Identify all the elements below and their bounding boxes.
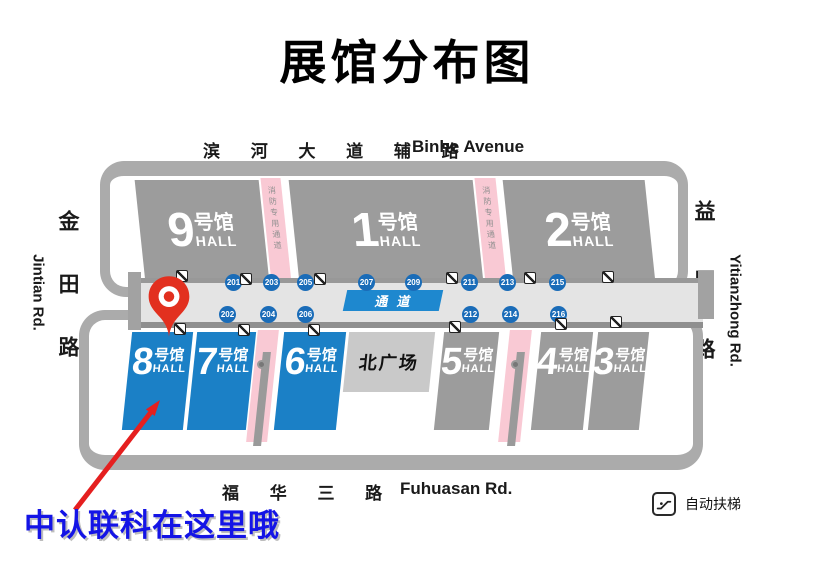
- road-yitian-en: Yitianzhong Rd.: [727, 236, 744, 386]
- road-fuhuasan-en: Fuhuasan Rd.: [400, 479, 512, 499]
- legend-escalator-label: 自动扶梯: [685, 494, 741, 514]
- escalator-marker-icon: [446, 272, 458, 284]
- escalator-marker-icon: [308, 324, 320, 336]
- escalator-marker-icon: [314, 273, 326, 285]
- north-plaza: 北广场: [343, 332, 435, 392]
- hall-5: 5 号馆HALL: [434, 332, 499, 430]
- gate-215: 215: [549, 274, 566, 291]
- gate-206: 206: [297, 306, 314, 323]
- hall-3: 3 号馆HALL: [588, 332, 649, 430]
- corridor-end-cap: [698, 271, 714, 319]
- escalator-marker-icon: [602, 271, 614, 283]
- gate-202: 202: [219, 306, 236, 323]
- gate-213: 213: [499, 274, 516, 291]
- gate-204: 204: [260, 306, 277, 323]
- gate-211: 211: [461, 274, 478, 291]
- legend-escalator: 自动扶梯: [652, 492, 741, 516]
- gate-212: 212: [462, 306, 479, 323]
- north-plaza-label: 北广场: [358, 349, 421, 375]
- hall-1: 1 号馆HALL: [289, 180, 484, 282]
- escalator-icon: [652, 492, 676, 516]
- hall-6: 6 号馆HALL: [274, 332, 346, 430]
- hall-4: 4 号馆HALL: [531, 332, 593, 430]
- gate-207: 207: [358, 274, 375, 291]
- page-title: 展馆分布图: [0, 24, 814, 93]
- hall-2: 2 号馆HALL: [503, 180, 656, 282]
- stairs-marker-icon: [610, 316, 622, 328]
- road-jintian-en: Jintian Rd.: [30, 238, 47, 348]
- corridor-end-cap: [128, 272, 141, 330]
- location-pin-icon: [147, 268, 191, 346]
- passage-label: 通道: [373, 291, 421, 310]
- escalator-marker-icon: [449, 321, 461, 333]
- escalator-marker-icon: [240, 273, 252, 285]
- ramp-knob: [257, 360, 266, 369]
- road-jintian-zh: 金田路: [52, 210, 82, 399]
- hall-7: 7 号馆HALL: [187, 332, 256, 430]
- passage-bar: 通道: [343, 290, 443, 311]
- stairs-marker-icon: [555, 318, 567, 330]
- gate-205: 205: [297, 274, 314, 291]
- escalator-marker-icon: [238, 324, 250, 336]
- gate-209: 209: [405, 274, 422, 291]
- hall-9: 9 号馆HALL: [135, 180, 270, 282]
- escalator-marker-icon: [524, 272, 536, 284]
- gate-203: 203: [263, 274, 280, 291]
- gate-214: 214: [502, 306, 519, 323]
- ramp-knob: [511, 360, 520, 369]
- callout-text: 中认联科在这里哦: [24, 500, 280, 545]
- road-binhe-en: Binhe Avenue: [412, 137, 524, 157]
- exhibition-map: 展馆分布图 滨 河 大 道 辅 路 Binhe Avenue 福 华 三 路 F…: [0, 0, 814, 571]
